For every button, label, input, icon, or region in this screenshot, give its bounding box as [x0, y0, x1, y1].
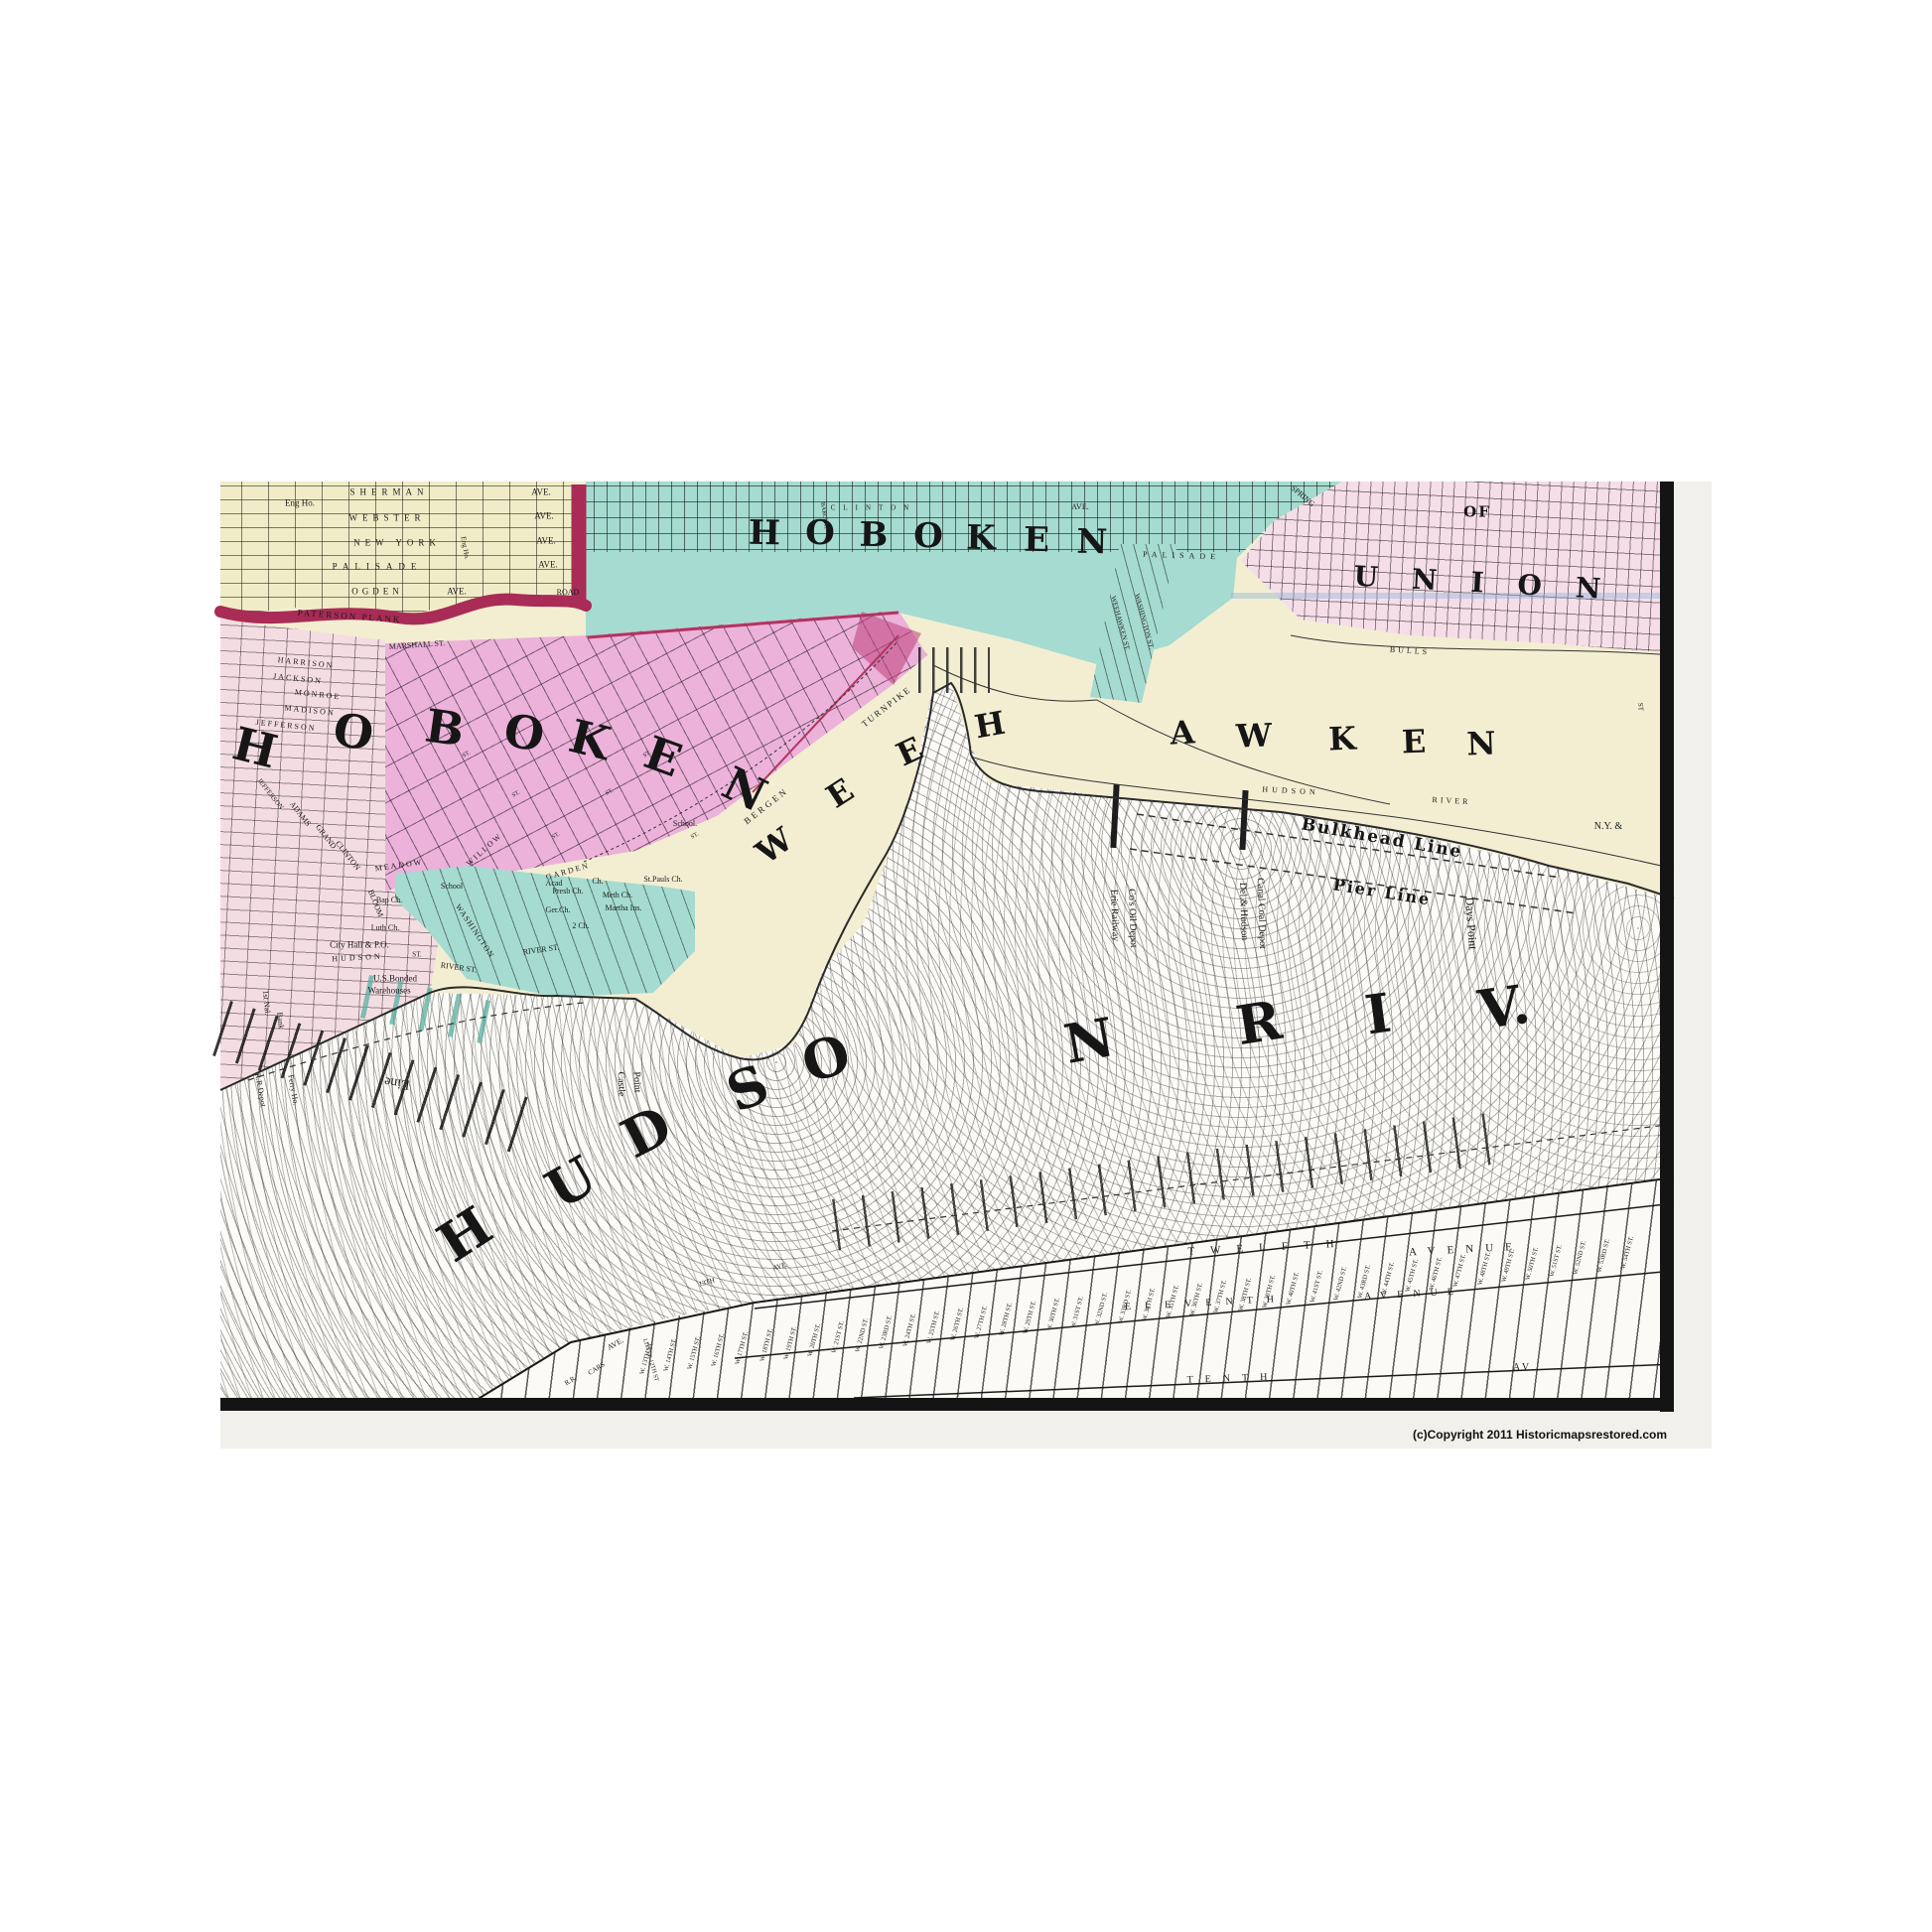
map-label: AVE. — [536, 537, 556, 546]
map-screenshot: SHERMANAVE.Eng Ho.WEBSTERAVE.NEW YORKAVE… — [0, 0, 1932, 1932]
map-border-right — [1660, 482, 1674, 1412]
map-label: NEW YORK — [353, 539, 441, 548]
map-label: V. — [1475, 977, 1533, 1037]
map-label: WEBSTER — [349, 514, 426, 523]
map-label: SHERMAN — [349, 488, 428, 497]
hoboken-pier-line-dashed — [248, 1003, 584, 1080]
map-label: K — [1328, 723, 1357, 756]
map-label: OF — [1463, 505, 1491, 520]
map-label: H — [972, 707, 1007, 744]
map-label: AVE. — [531, 488, 551, 497]
map-label: ROAD — [557, 589, 580, 597]
map-label: O — [500, 707, 547, 759]
paterson-plank-road — [220, 600, 586, 620]
linework-overlay — [0, 0, 1932, 1932]
map-label: N — [1466, 727, 1496, 759]
map-label: O — [805, 516, 835, 551]
map-label: ST — [1636, 703, 1644, 712]
map-label: U.S.Bonded — [373, 975, 417, 984]
map-label: N — [1076, 525, 1108, 560]
copyright-text: (c)Copyright 2011 Historicmapsrestored.c… — [1413, 1428, 1667, 1442]
map-label: B — [423, 703, 468, 754]
map-label: Warehouses — [367, 987, 410, 996]
hoboken-north-boundary — [588, 613, 898, 637]
map-label: W — [1235, 719, 1272, 752]
map-label: Luth Ch. — [371, 924, 399, 932]
manhattan-pier-line-dashed — [832, 1124, 1674, 1231]
map-label: Martha Ins. — [606, 904, 642, 912]
map-label: Presb Ch. — [552, 888, 583, 896]
map-label: Ger.Ch. — [546, 906, 571, 914]
map-label: B — [859, 518, 888, 552]
map-label: St.Pauls Ch. — [643, 876, 682, 884]
map-label: AVE. — [447, 588, 467, 597]
map-label: Castle — [616, 1071, 626, 1096]
map-label: Del.& Hudson — [1237, 883, 1249, 941]
map-label: City Hall & P.O. — [330, 941, 389, 950]
map-label: Ch. — [592, 878, 603, 886]
weehawken-shore-road — [971, 757, 1674, 869]
map-label: Eng Ho. — [285, 499, 315, 508]
map-label: 1st Nal. — [261, 990, 272, 1016]
bulls-ferry-road — [1291, 635, 1674, 655]
manhattan-strip-top-edge — [477, 1177, 1674, 1400]
map-label: Point — [631, 1071, 642, 1092]
map-label: Days Point — [1463, 897, 1479, 950]
map-label: OGDEN — [351, 588, 403, 597]
map-label: ST. — [412, 952, 421, 959]
map-label: O — [330, 706, 376, 758]
map-label: A V — [1513, 1363, 1529, 1373]
map-label: E — [1024, 523, 1050, 557]
map-label: N — [1060, 1010, 1118, 1071]
map-label: Line — [383, 1073, 410, 1090]
map-label: E — [1401, 726, 1426, 759]
map-label: AVE. — [538, 561, 558, 570]
map-label: R — [1233, 993, 1286, 1052]
map-label: CLINTON — [831, 505, 917, 512]
map-label: School — [441, 883, 463, 891]
map-label: Canal Coal Depot — [1255, 878, 1267, 949]
map-label: Meth Ch. — [603, 892, 632, 899]
map-label: A — [1170, 716, 1195, 749]
map-label: Bank — [275, 1012, 285, 1030]
map-label: AVE. — [1071, 503, 1088, 511]
map-label: AVE. — [534, 512, 554, 521]
map-label: PALISADE — [333, 563, 423, 572]
map-label: 2 Ch. — [572, 922, 589, 930]
map-label: School. — [673, 820, 697, 828]
map-label: K — [966, 521, 996, 556]
map-label: O — [913, 519, 943, 554]
map-label: Co's Oil Depot — [1126, 889, 1138, 948]
railroad-arc — [584, 640, 898, 862]
map-label: Erie Railway — [1108, 890, 1120, 942]
map-border-bottom — [220, 1398, 1674, 1411]
map-label: N.Y. & — [1594, 822, 1622, 832]
map-label: H — [749, 516, 781, 551]
